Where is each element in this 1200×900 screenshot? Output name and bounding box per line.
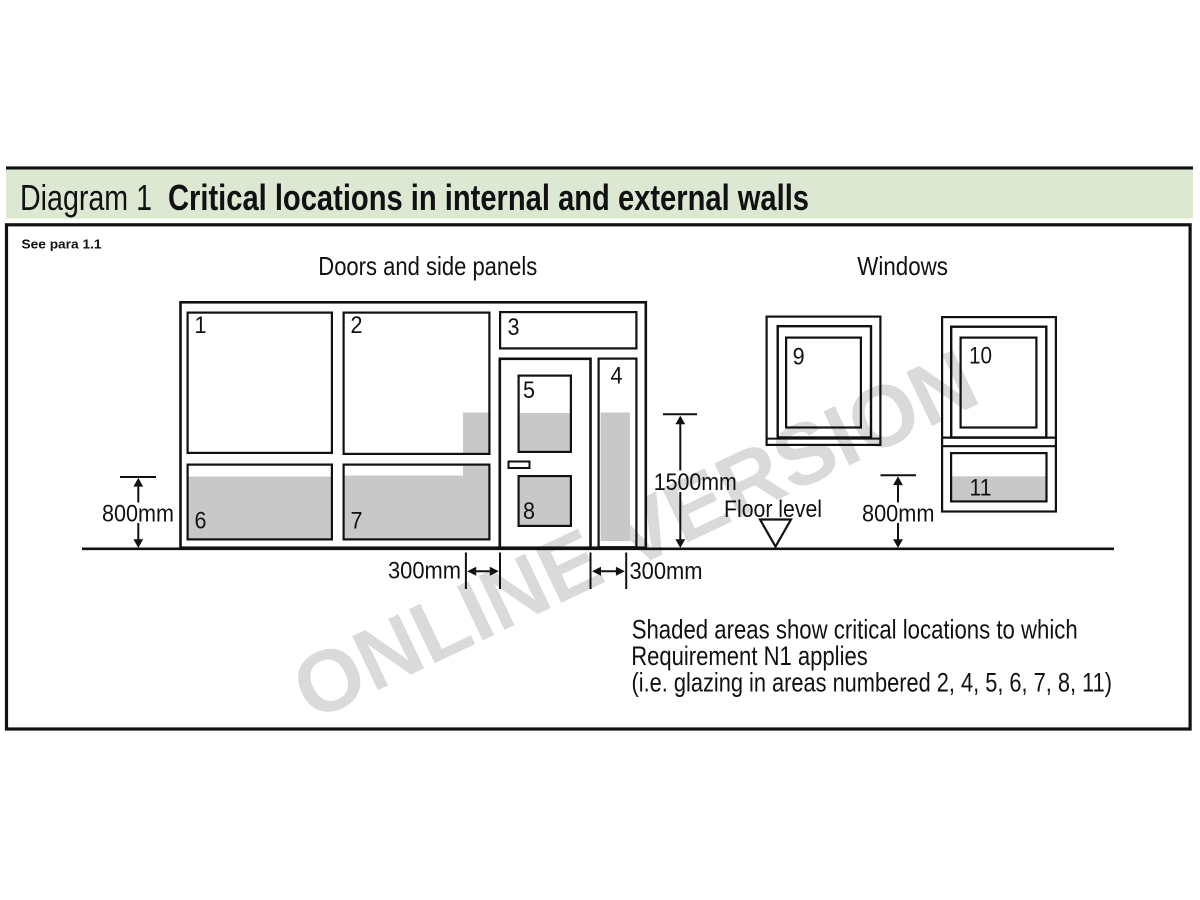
svg-text:10: 10	[969, 343, 992, 370]
svg-text:3: 3	[508, 314, 520, 341]
svg-text:7: 7	[351, 508, 363, 535]
svg-text:2: 2	[351, 312, 363, 339]
svg-text:11: 11	[970, 475, 992, 502]
svg-text:5: 5	[523, 377, 535, 404]
svg-text:300mm: 300mm	[630, 558, 703, 585]
svg-text:800mm: 800mm	[102, 500, 174, 527]
svg-text:300mm: 300mm	[388, 558, 461, 585]
svg-text:Doors and side panels: Doors and side panels	[318, 251, 537, 281]
svg-text:6: 6	[195, 508, 207, 535]
svg-text:See para 1.1: See para 1.1	[22, 237, 102, 252]
svg-text:1: 1	[195, 312, 207, 339]
svg-text:Diagram 1: Diagram 1	[20, 177, 152, 218]
svg-text:Requirement N1 applies: Requirement N1 applies	[631, 641, 868, 671]
svg-text:9: 9	[793, 344, 805, 371]
svg-text:4: 4	[611, 363, 623, 390]
svg-text:800mm: 800mm	[862, 501, 935, 528]
svg-text:1500mm: 1500mm	[654, 469, 737, 496]
svg-text:Critical locations in internal: Critical locations in internal and exter…	[168, 177, 809, 218]
svg-text:8: 8	[523, 498, 535, 525]
svg-text:Shaded areas show critical loc: Shaded areas show critical locations to …	[632, 614, 1078, 644]
svg-text:(i.e. glazing in areas numbere: (i.e. glazing in areas numbered 2, 4, 5,…	[632, 668, 1113, 698]
svg-text:Windows: Windows	[857, 251, 948, 281]
